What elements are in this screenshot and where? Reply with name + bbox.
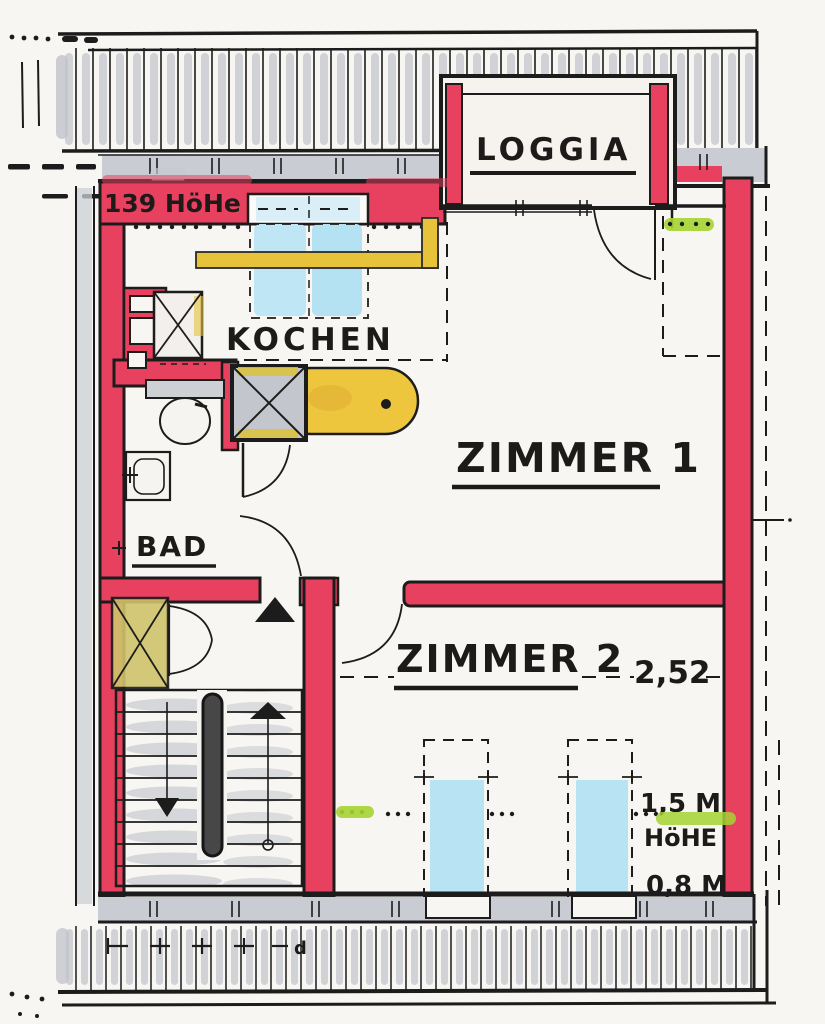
room2-label: ZIMMER 2: [396, 637, 624, 681]
loggia-label: LOGGIA: [476, 132, 631, 168]
section-letter: d: [294, 938, 307, 959]
window-b-sill: [572, 896, 636, 918]
sink: [122, 452, 170, 500]
stair-rail: [203, 694, 222, 856]
landing-shaft-box: [112, 598, 168, 688]
right-wall: [724, 178, 752, 897]
bottom-wall: [98, 894, 757, 922]
stair-corridor-wall: [304, 578, 334, 897]
chimney-shaft-box: [232, 366, 306, 440]
floor-plan-drawing: LOGGIA: [0, 0, 825, 1024]
left-outer-wall-band: [76, 186, 94, 906]
room-divider-wall: [404, 582, 728, 606]
bath-label: BAD: [136, 530, 208, 563]
kitchen-closet-box: [154, 292, 206, 364]
window-a-sill: [426, 896, 490, 918]
room1-label: ZIMMER 1: [456, 434, 701, 482]
window-height-word: HöHE: [644, 824, 717, 852]
floor-plan-sheet: LOGGIA: [0, 0, 825, 1024]
green-mark-room2: [336, 806, 374, 818]
stairs: [116, 690, 302, 886]
room2-width-dim: 2,52: [634, 655, 711, 691]
height-139-label: 139 HöHe: [104, 189, 241, 218]
green-mark-15m: [656, 812, 736, 825]
kitchen-label: KOCHEN: [226, 322, 395, 358]
